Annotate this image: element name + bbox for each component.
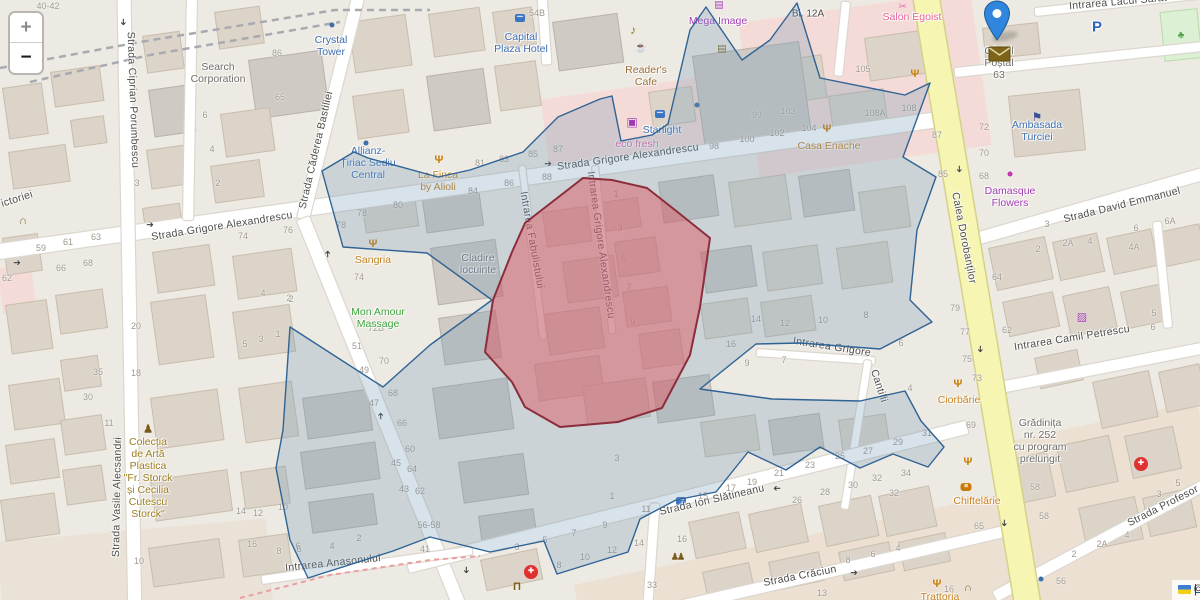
building	[728, 174, 792, 228]
cart-purple-icon: ▤	[714, 0, 723, 11]
dot-icon	[695, 103, 700, 108]
building	[5, 299, 54, 354]
house-number: 62	[415, 486, 425, 496]
house-number: 8	[276, 546, 281, 556]
house-number: 5	[542, 535, 547, 545]
house-number: 98	[709, 141, 719, 151]
house-number: 64	[407, 464, 417, 474]
house-number: 79	[950, 303, 960, 313]
house-number: 3	[258, 334, 263, 344]
poi-label: Colecția de Artă Plastica "Fr. Storck și…	[124, 436, 173, 520]
building	[308, 493, 378, 534]
building	[688, 511, 747, 559]
building	[70, 115, 108, 147]
house-number: 85	[938, 169, 948, 179]
dot-icon	[1039, 577, 1044, 582]
house-number: 21	[774, 468, 784, 478]
house-number: 1	[609, 491, 614, 501]
house-number: 14	[634, 538, 644, 548]
dot-m-icon	[1008, 172, 1013, 177]
street-name-label: Intrarea Lacul Sărat	[1069, 0, 1168, 12]
building	[428, 7, 486, 58]
house-number: 66	[397, 418, 407, 428]
poi-label: Reader's Cafe	[625, 64, 667, 88]
house-number: 6	[296, 544, 301, 554]
restaurant-icon: Ψ	[435, 154, 444, 166]
zoom-in-button[interactable]: +	[10, 13, 42, 43]
house-number: 62	[1002, 325, 1012, 335]
osm-copyright-text: © OpenStreetMap	[1194, 580, 1200, 600]
house-number: 5	[242, 339, 247, 349]
building	[658, 174, 719, 223]
burger-icon: ≡	[961, 483, 972, 491]
house-number: 10	[278, 502, 288, 512]
house-number: 102	[769, 128, 784, 138]
house-number: 2A	[1096, 539, 1107, 549]
poi-label: Cladire locuinte	[460, 252, 496, 276]
house-number: 63	[91, 232, 101, 242]
house-number: 86	[272, 48, 282, 58]
clothes-icon: ▨	[1077, 311, 1087, 324]
poi-label: Casa Enache	[797, 140, 860, 152]
house-number: 4	[895, 543, 900, 553]
house-number: 30	[83, 392, 93, 402]
building	[5, 438, 60, 485]
house-number: 4	[260, 288, 265, 298]
house-number: 103	[780, 106, 795, 116]
house-number: 99	[752, 110, 762, 120]
restaurant-icon: Ψ	[933, 578, 942, 590]
house-number: 77	[960, 327, 970, 337]
house-number: 14	[751, 314, 761, 324]
building	[62, 464, 107, 505]
house-number: 20	[131, 321, 141, 331]
arrow-icon: ➔	[773, 483, 781, 494]
house-number: 9	[630, 317, 635, 327]
building	[988, 236, 1054, 291]
building	[494, 60, 542, 111]
house-number: 4	[1087, 236, 1092, 246]
house-number: 14	[236, 506, 246, 516]
house-number: 75	[962, 354, 972, 364]
poi-label: eco fresh	[615, 138, 658, 150]
house-number: 12	[253, 508, 263, 518]
building	[232, 304, 296, 360]
building	[152, 244, 215, 294]
house-number: 2	[215, 178, 220, 188]
house-number: 4	[1124, 530, 1129, 540]
poi-label: Crystal Tower	[315, 34, 348, 58]
poi-label: Trattoria	[921, 591, 960, 600]
house-number: 26	[792, 495, 802, 505]
house-number: 47	[369, 398, 379, 408]
poi-label: Oficiul Poștal 63	[984, 45, 1013, 81]
road	[183, 0, 197, 220]
building	[638, 328, 685, 369]
building	[142, 31, 185, 74]
pharmacy-icon: +	[1134, 457, 1148, 471]
building	[300, 441, 381, 489]
house-number: 62	[2, 273, 12, 283]
house-number: 10	[580, 552, 590, 562]
zoom-control: + −	[10, 13, 42, 73]
house-number: 7	[781, 355, 786, 365]
house-number: 78	[357, 208, 367, 218]
building	[700, 245, 757, 294]
house-number: 61	[63, 237, 73, 247]
house-number: 65	[275, 92, 285, 102]
building	[1092, 370, 1159, 429]
restaurant-icon: Ψ	[911, 68, 920, 80]
house-number: 7	[626, 282, 631, 292]
music-icon: ♪	[630, 23, 636, 37]
house-number: 64	[992, 272, 1002, 282]
building	[150, 294, 214, 365]
house-number: 9	[602, 520, 607, 530]
house-number: 7	[571, 528, 576, 538]
street-name-label: Cantilli	[868, 368, 890, 404]
house-number: 6	[202, 110, 207, 120]
arch-icon: ∩	[964, 582, 972, 594]
house-number: 25	[835, 451, 845, 461]
house-number: 35	[93, 367, 103, 377]
house-number: 32	[889, 488, 899, 498]
poi-label: Search Corporation	[191, 61, 246, 85]
poi-label: Chiftelărie	[953, 495, 1000, 507]
house-number: 108	[901, 103, 916, 113]
building	[768, 413, 825, 456]
house-number: 4	[329, 541, 334, 551]
house-number: 4A	[1128, 242, 1139, 252]
house-number: 41	[420, 544, 430, 554]
arrow-icon: ➔	[13, 258, 21, 269]
house-number: 81	[475, 158, 485, 168]
house-number: 11	[104, 418, 113, 428]
building	[652, 374, 715, 424]
house-number: 27	[863, 446, 873, 456]
house-number: 80	[393, 200, 403, 210]
poi-label: La Finca by Alioli	[418, 169, 458, 193]
house-number: 3	[1156, 489, 1161, 499]
building	[214, 6, 265, 50]
house-number: 68	[388, 388, 398, 398]
house-number: 68	[979, 171, 989, 181]
house-number: 5	[1175, 478, 1180, 488]
building	[798, 169, 855, 218]
building	[148, 538, 225, 588]
zoom-out-button[interactable]: −	[10, 43, 42, 73]
poi-label: Mon Amour Massage	[351, 306, 405, 330]
house-number: 4	[209, 144, 214, 154]
house-number: 87	[553, 144, 563, 154]
house-number: 30	[848, 480, 858, 490]
house-number: 43	[399, 484, 409, 494]
attribution-bar: Leaflet | © OpenStreetMap	[1172, 580, 1200, 600]
poi-label: P	[1092, 18, 1102, 35]
house-number: 68	[83, 258, 93, 268]
poi-label: Sangria	[355, 254, 391, 266]
building	[50, 65, 105, 108]
building	[648, 86, 697, 128]
house-number: 74	[354, 272, 364, 282]
house-number: 13	[817, 588, 827, 598]
house-number: 4	[907, 383, 912, 393]
arrow-icon: ➔	[544, 159, 552, 170]
house-number: 86	[504, 178, 514, 188]
poi-label: Salon Egoist	[883, 11, 942, 23]
house-number: 2A	[1062, 238, 1073, 248]
poi-label: Starlight	[643, 124, 682, 136]
house-number: 12	[607, 545, 617, 555]
house-number: 105	[855, 64, 870, 74]
house-number: 10	[818, 315, 828, 325]
poi-label: Capital Plaza Hotel	[494, 31, 548, 55]
house-number: 85	[528, 149, 538, 159]
building	[552, 13, 624, 72]
building	[238, 380, 299, 443]
house-number: 2	[1035, 244, 1040, 254]
house-number: 6	[898, 338, 903, 348]
house-number: 11	[641, 504, 650, 514]
house-number: 84	[468, 186, 478, 196]
restaurant-icon: Ψ	[954, 378, 963, 390]
house-number: 78	[336, 220, 346, 230]
house-number: 3	[514, 542, 519, 552]
building	[760, 295, 817, 338]
building	[60, 414, 107, 455]
childcare-icon: ♟♟	[671, 552, 683, 563]
arrow-icon: ➔	[975, 345, 986, 353]
house-number: 66	[56, 263, 66, 273]
house-number: 70	[979, 148, 989, 158]
building	[700, 414, 760, 457]
arrow-icon: ➔	[376, 412, 387, 420]
building	[426, 68, 491, 132]
house-number: 32	[872, 473, 882, 483]
house-number: 51	[352, 341, 362, 351]
house-number: 2	[1071, 549, 1076, 559]
house-number: 3	[614, 453, 619, 463]
house-number: 76	[283, 225, 293, 235]
house-number: 56-58	[417, 520, 440, 530]
arrow-icon: ➔	[954, 165, 965, 173]
house-number: 59	[36, 243, 46, 253]
building	[2, 82, 49, 139]
house-number: 3	[134, 178, 139, 188]
house-number: 6A	[1164, 216, 1175, 226]
poi-label: Damasque Flowers	[985, 185, 1036, 209]
building	[878, 485, 938, 537]
building	[858, 185, 911, 233]
house-number: 56	[1056, 576, 1066, 586]
house-number: 33	[647, 580, 657, 590]
poi-label: Ambasada Turciei	[1012, 119, 1062, 143]
house-number: 2	[356, 533, 361, 543]
house-number: 73	[972, 373, 982, 383]
building	[0, 492, 60, 541]
arrow-icon: ➔	[461, 566, 472, 574]
arch-icon: ∩	[19, 215, 27, 227]
house-number: 8	[845, 555, 850, 565]
house-number: 5	[621, 253, 626, 263]
poi-label: Ciorbărie	[938, 394, 981, 406]
street-name-label: Intrarea Fabulistului	[518, 190, 547, 289]
hotel-icon: —	[655, 110, 665, 118]
pharmacy-icon: +	[524, 565, 538, 579]
house-number: 6	[1133, 223, 1138, 233]
house-number: 40-42	[36, 1, 59, 11]
house-number: 34	[901, 468, 911, 478]
arrow-icon: ➔	[323, 250, 334, 258]
statue-icon: ♟	[143, 423, 153, 436]
arrow-icon: ➔	[146, 220, 154, 231]
house-number: 83	[499, 154, 509, 164]
building	[438, 310, 502, 366]
building	[302, 389, 373, 440]
house-number: 100	[739, 134, 754, 144]
restaurant-icon: Ψ	[369, 238, 378, 250]
house-number: 69	[966, 420, 976, 430]
building	[55, 288, 108, 334]
house-number: 88	[542, 172, 552, 182]
house-number: 10	[134, 556, 144, 566]
building	[432, 377, 514, 439]
house-number: 12	[780, 318, 790, 328]
arrow-icon: ➔	[999, 519, 1010, 527]
house-number: 29	[893, 437, 903, 447]
house-number: 6	[1150, 322, 1155, 332]
hotel-icon: —	[515, 14, 525, 22]
house-number: 3	[617, 223, 622, 233]
house-number: 54B	[529, 8, 545, 18]
map-canvas[interactable]: + − Leaflet | © OpenStreetMap ♣Strada Ci…	[0, 0, 1200, 600]
poi-label: Grădinița nr. 252 cu program prelungit	[1013, 417, 1066, 465]
house-number: 31	[922, 428, 932, 438]
building	[8, 144, 71, 190]
street-name-label: Strada Vasile Alecsandri	[110, 437, 124, 557]
house-number: 58	[1030, 482, 1040, 492]
building	[836, 241, 893, 290]
house-number: 87	[932, 130, 942, 140]
street-name-label: ictoriei	[0, 188, 34, 210]
building	[220, 107, 276, 158]
building	[352, 89, 410, 140]
building	[700, 297, 753, 339]
house-number: 45	[391, 458, 401, 468]
house-number: 104	[801, 123, 816, 133]
house-number: 58	[1039, 511, 1049, 521]
building	[8, 378, 66, 431]
house-number: 3	[1044, 219, 1049, 229]
building	[762, 244, 823, 291]
building	[542, 206, 593, 248]
house-number: 5	[1151, 308, 1156, 318]
house-number: 49	[359, 365, 369, 375]
poi-label: Bl. 12A	[792, 8, 824, 20]
building	[458, 453, 529, 504]
building	[1052, 232, 1105, 281]
house-number: 18	[131, 368, 141, 378]
ukraine-flag-icon	[1178, 585, 1191, 594]
building	[748, 503, 809, 553]
house-number: 8	[556, 560, 561, 570]
arrow-icon: ➔	[850, 568, 858, 579]
house-number: 108A	[864, 108, 885, 118]
house-number: 16	[726, 339, 736, 349]
restaurant-icon: Ψ	[823, 123, 832, 135]
laundry-icon: ▣	[626, 115, 637, 129]
house-number: 2	[288, 294, 293, 304]
house-number: 1	[613, 189, 618, 199]
house-number: 74	[238, 231, 248, 241]
house-number: 28	[820, 487, 830, 497]
road	[834, 2, 850, 76]
poi-label: Mega Image	[689, 15, 747, 27]
poi-label: Allianz- Țiriac Sediu Central	[340, 145, 395, 181]
house-number: 65	[974, 521, 984, 531]
house-number: 72	[979, 122, 989, 132]
house-number: 1	[275, 329, 280, 339]
dot-icon	[330, 23, 335, 28]
building	[1158, 363, 1200, 413]
house-number: 9	[744, 358, 749, 368]
house-number: 8	[863, 310, 868, 320]
arrow-icon: ➔	[118, 18, 129, 26]
house-number: 16	[677, 534, 687, 544]
house-number: 16	[247, 539, 257, 549]
museum-icon: Π	[513, 581, 521, 593]
house-number: 23	[805, 460, 815, 470]
cart-icon: ▤	[717, 44, 726, 55]
house-number: 70	[379, 356, 389, 366]
building	[544, 306, 605, 355]
house-number: 6	[870, 549, 875, 559]
restaurant-icon: Ψ	[964, 456, 973, 468]
house-number: 60	[405, 444, 415, 454]
cafe-icon: ☕	[635, 43, 647, 54]
building	[1124, 426, 1182, 479]
building	[582, 377, 651, 426]
